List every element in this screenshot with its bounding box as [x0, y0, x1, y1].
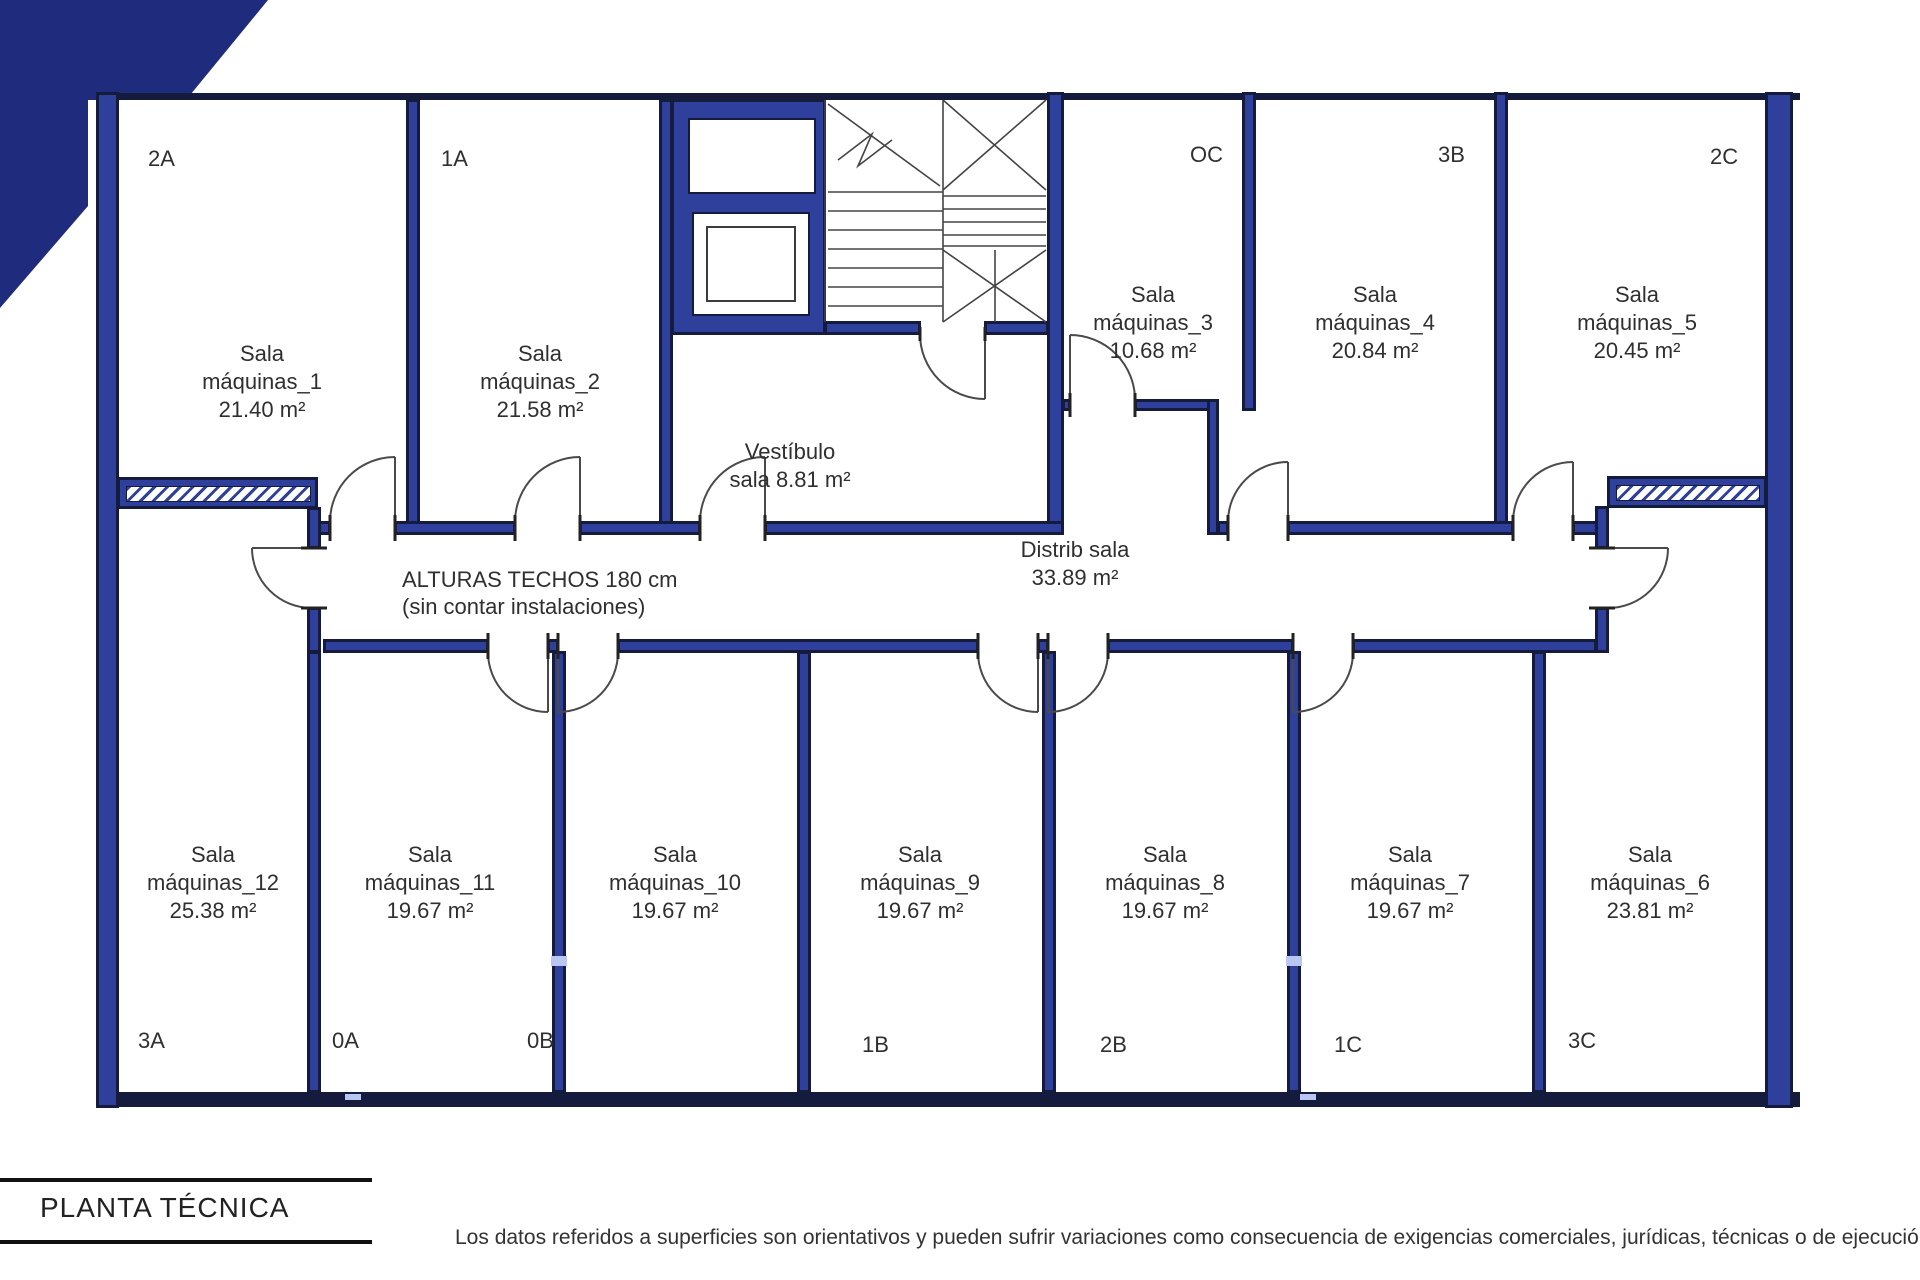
room-label-maquinas-7: Salamáquinas_719.67 m² [1290, 841, 1530, 925]
room-label-maquinas-11: Salamáquinas_1119.67 m² [310, 841, 550, 925]
room-label-maquinas-10: Salamáquinas_1019.67 m² [555, 841, 795, 925]
unit-label-3B: 3B [1438, 142, 1465, 168]
room-label-distrib: Distrib sala33.89 m² [955, 536, 1195, 592]
page-title: PLANTA TÉCNICA [40, 1192, 289, 1224]
room-label-maquinas-12: Salamáquinas_1225.38 m² [93, 841, 333, 925]
unit-label-0A: 0A [332, 1028, 359, 1054]
unit-label-1A: 1A [441, 146, 468, 172]
unit-label-2B: 2B [1100, 1032, 1127, 1058]
room-label-maquinas-9: Salamáquinas_919.67 m² [800, 841, 1040, 925]
room-label-maquinas-6: Salamáquinas_623.81 m² [1530, 841, 1770, 925]
room-label-maquinas-8: Salamáquinas_819.67 m² [1045, 841, 1285, 925]
room-label-vestibulo: Vestíbulosala 8.81 m² [670, 438, 910, 494]
unit-label-1B: 1B [862, 1032, 889, 1058]
title-rule-bottom [0, 1240, 372, 1244]
unit-label-3C: 3C [1568, 1028, 1596, 1054]
room-label-maquinas-4: Salamáquinas_420.84 m² [1255, 281, 1495, 365]
unit-label-2A: 2A [148, 146, 175, 172]
unit-label-3A: 3A [138, 1028, 165, 1054]
room-label-maquinas-2: Salamáquinas_221.58 m² [420, 340, 660, 424]
title-rule-top [0, 1178, 372, 1182]
disclaimer-text: Los datos referidos a superficies son or… [455, 1226, 1920, 1250]
doors-and-stairs-layer [0, 0, 1920, 1280]
unit-label-2C: 2C [1710, 144, 1738, 170]
unit-label-1C: 1C [1334, 1032, 1362, 1058]
room-label-maquinas-5: Salamáquinas_520.45 m² [1517, 281, 1757, 365]
ceiling-height-note: ALTURAS TECHOS 180 cm(sin contar instala… [402, 566, 677, 620]
unit-label-OC: OC [1190, 142, 1223, 168]
room-label-maquinas-3: Salamáquinas_310.68 m² [1033, 281, 1273, 365]
floor-plan-page: 2A 1A OC 3B 2C Salamáquinas_121.40 m² Sa… [0, 0, 1920, 1280]
room-label-maquinas-1: Salamáquinas_121.40 m² [142, 340, 382, 424]
unit-label-0B: 0B [527, 1028, 554, 1054]
